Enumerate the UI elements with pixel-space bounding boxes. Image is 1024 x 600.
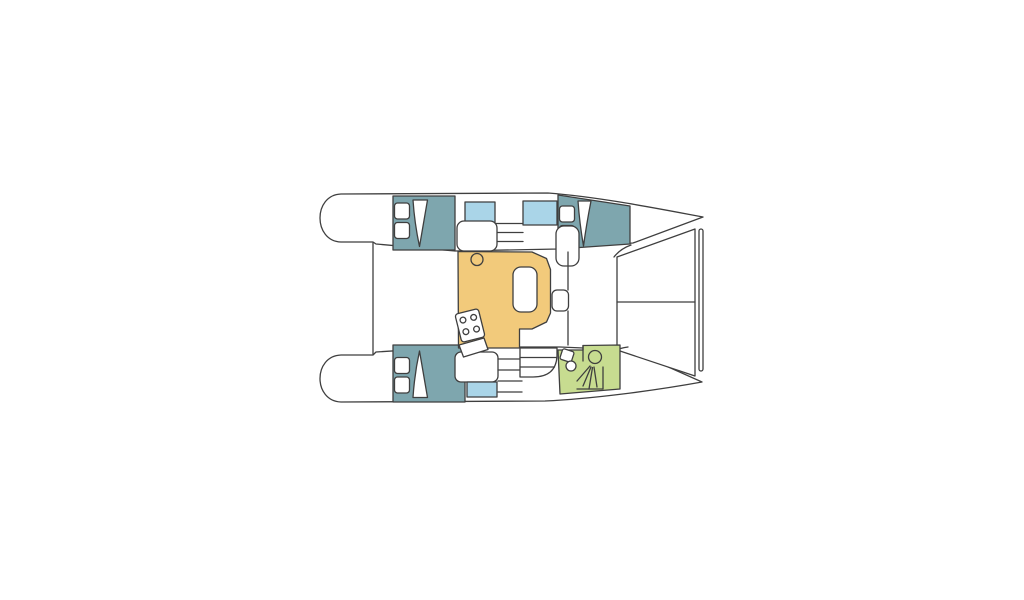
berth-pillow [395, 377, 410, 393]
stove-burner [459, 317, 466, 324]
boat-floor-plan [0, 0, 1024, 600]
seat-aft-saloon [457, 221, 497, 251]
dinette-table [513, 267, 537, 312]
forward-crossbeam [699, 229, 703, 371]
stove-burner [470, 314, 477, 321]
berth-aft-starboard [455, 352, 498, 382]
berth-pillow [395, 358, 410, 374]
hull-window-aft-port [465, 202, 495, 223]
berth-pillow [560, 206, 575, 222]
hull-window-fwd-port [523, 201, 557, 225]
page-canvas [0, 0, 1024, 600]
mast-step [552, 290, 569, 311]
toilet-bowl-icon [566, 361, 576, 371]
berth-pillow [395, 223, 410, 239]
stove-burner [473, 326, 480, 333]
berth-pillow [395, 203, 410, 219]
hull-window-aft-starboard [467, 382, 497, 397]
hull-port [320, 193, 703, 251]
stove-burner [462, 328, 469, 335]
